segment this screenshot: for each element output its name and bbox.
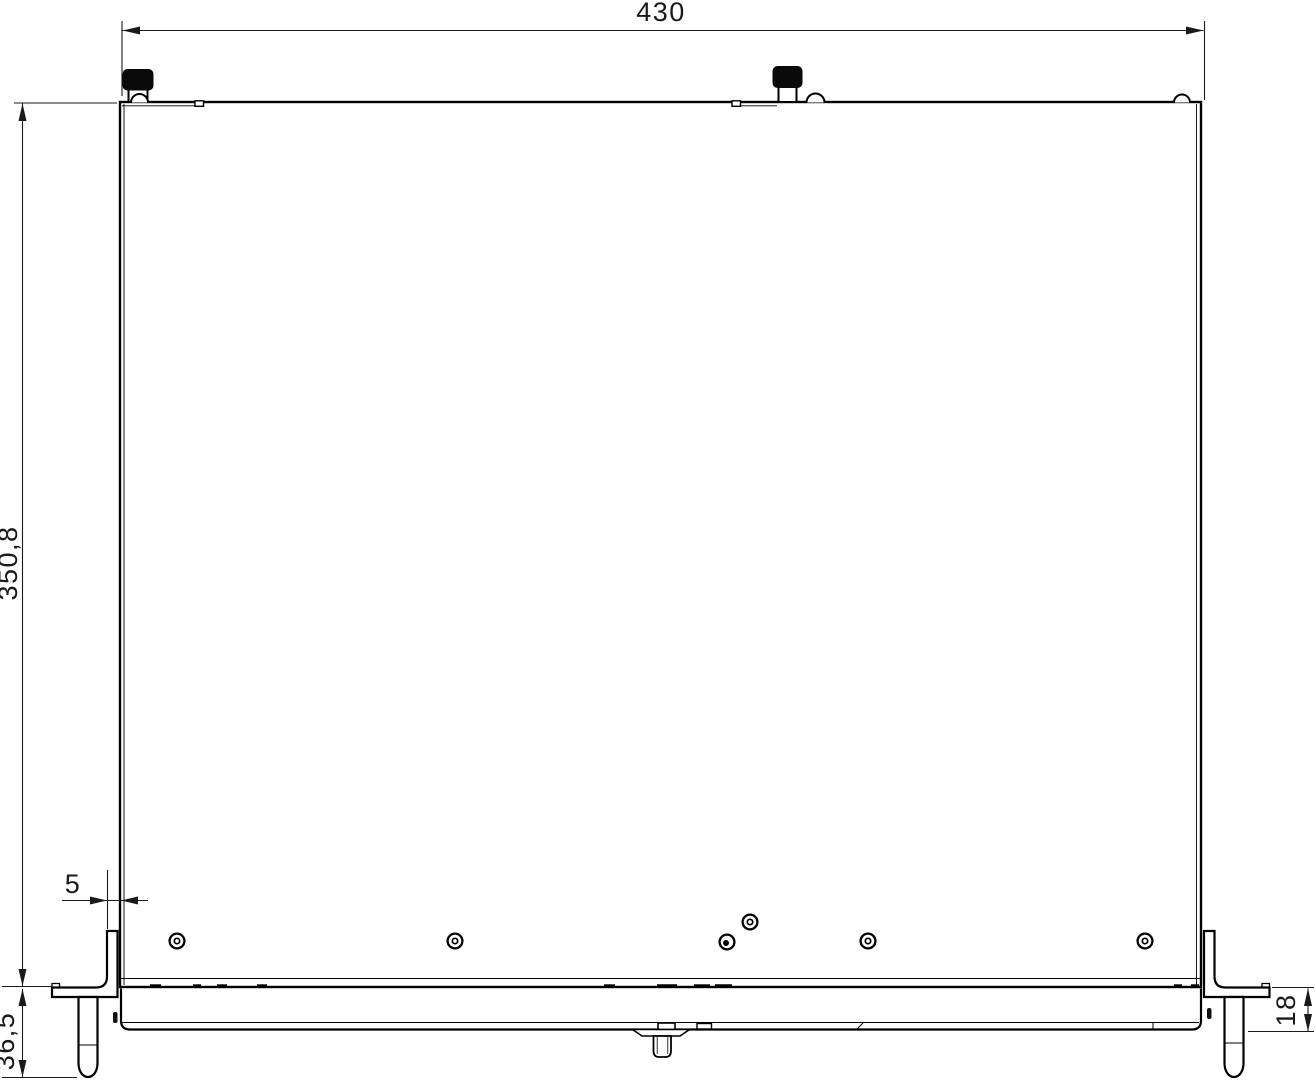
thumbscrew-left-head xyxy=(123,69,154,91)
latch-clip-left xyxy=(658,1023,675,1030)
dim-foot-depth: 36,5 xyxy=(0,989,77,1078)
rear-hardware xyxy=(123,66,1191,103)
arrowhead xyxy=(1304,989,1312,1007)
arrowhead xyxy=(123,27,141,35)
arrowhead xyxy=(90,897,107,905)
foot-left xyxy=(79,997,98,1077)
dim-front-offset: 5 xyxy=(62,869,148,929)
dim-label-overall-width: 430 xyxy=(636,0,686,27)
rack-ear-right xyxy=(1204,931,1270,1077)
dome-button-corner xyxy=(1174,95,1190,103)
foot-right xyxy=(1225,997,1244,1077)
arrowhead xyxy=(19,989,27,1006)
front-latch xyxy=(633,1023,712,1057)
dome-button-left xyxy=(131,94,148,102)
rack-ear-left-hole xyxy=(113,1012,118,1023)
rack-ear-left-bracket xyxy=(52,931,118,997)
thumbscrew-right-head xyxy=(773,66,803,88)
thumbscrew-left xyxy=(123,69,154,103)
top-notch-mid xyxy=(732,101,741,107)
dim-overall-depth: 350,8 xyxy=(0,103,117,987)
arrowhead xyxy=(1304,1014,1312,1032)
dim-label-overall-depth: 350,8 xyxy=(0,525,23,600)
technical-drawing-page: 430 350,8 5 36,5 18 xyxy=(0,0,1316,1080)
rack-ear-right-hole xyxy=(1207,1008,1212,1019)
latch-pin xyxy=(654,1036,672,1057)
arrowhead xyxy=(1186,27,1204,35)
arrowhead xyxy=(19,104,27,122)
thumbscrew-right-stem xyxy=(779,87,797,103)
rack-ear-left xyxy=(52,931,118,1077)
dim-label-bottom-height: 18 xyxy=(1271,993,1301,1026)
chassis-outline xyxy=(120,102,1201,987)
thumbscrew-right xyxy=(773,66,825,103)
screw-holes xyxy=(170,915,1153,950)
chassis-top-view-drawing: 430 350,8 5 36,5 18 xyxy=(0,0,1316,1080)
dim-overall-width: 430 xyxy=(122,0,1205,100)
top-notch-left xyxy=(195,101,204,107)
panel-joint-tick xyxy=(857,1023,863,1029)
latch-bracket xyxy=(633,1030,690,1037)
dim-label-foot-depth: 36,5 xyxy=(0,1012,20,1071)
chassis-body xyxy=(120,101,1201,1057)
arrowhead xyxy=(19,969,27,986)
dome-button-mid xyxy=(807,94,825,103)
dim-label-front-offset: 5 xyxy=(65,869,82,899)
rack-ear-right-bracket xyxy=(1204,931,1270,997)
latch-clip-right xyxy=(697,1024,712,1030)
